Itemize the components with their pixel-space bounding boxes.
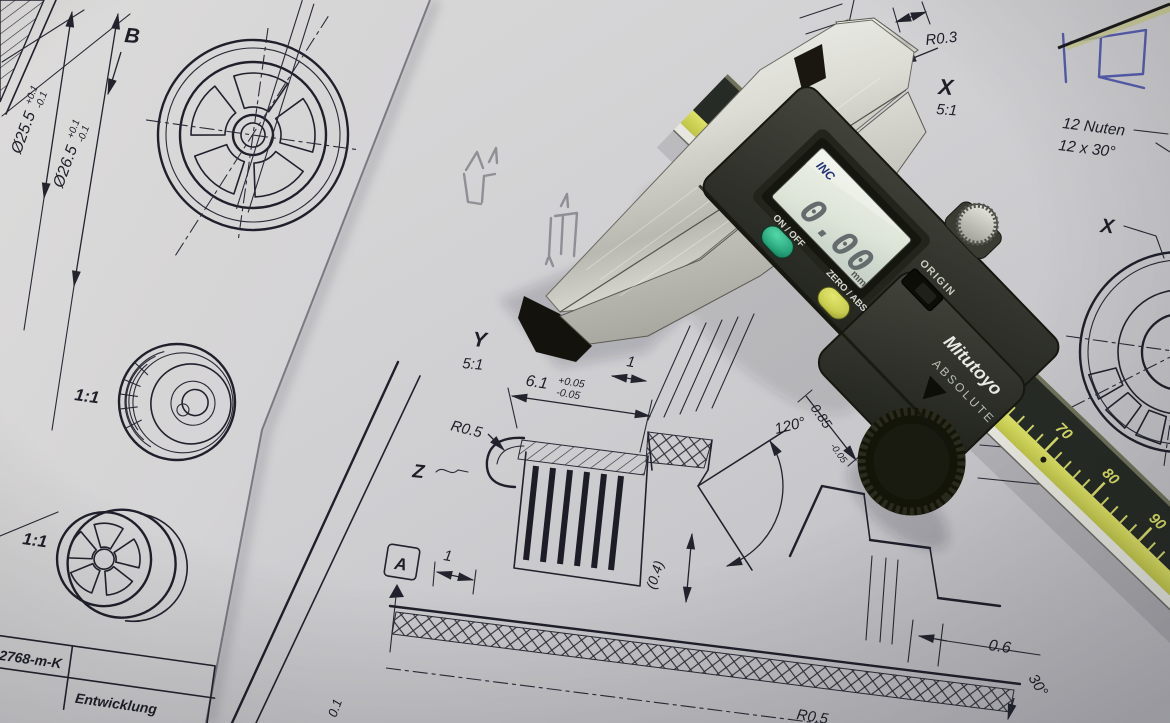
photo-vignette (0, 0, 1170, 723)
photo-caliper-on-drawings: R0.3 X 5:1 12 Nuten 12 x 30° (0, 0, 1170, 723)
photo-scene: R0.3 X 5:1 12 Nuten 12 x 30° (0, 0, 1170, 723)
